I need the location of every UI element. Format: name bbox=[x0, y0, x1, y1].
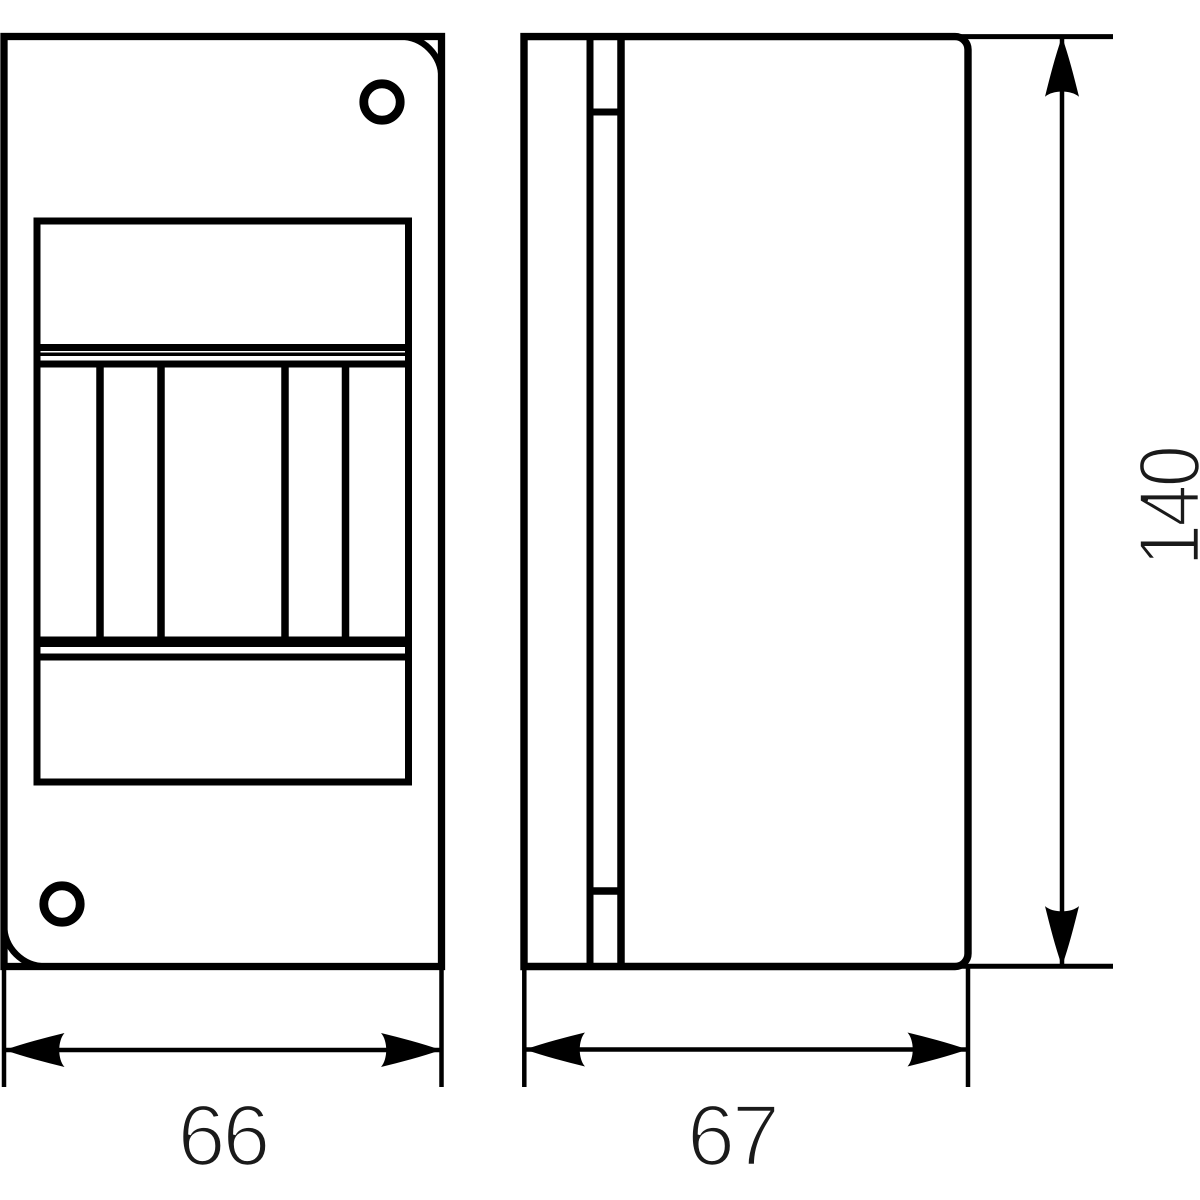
svg-text:140: 140 bbox=[1123, 448, 1200, 566]
svg-text:67: 67 bbox=[687, 1088, 777, 1184]
svg-text:66: 66 bbox=[178, 1088, 268, 1184]
